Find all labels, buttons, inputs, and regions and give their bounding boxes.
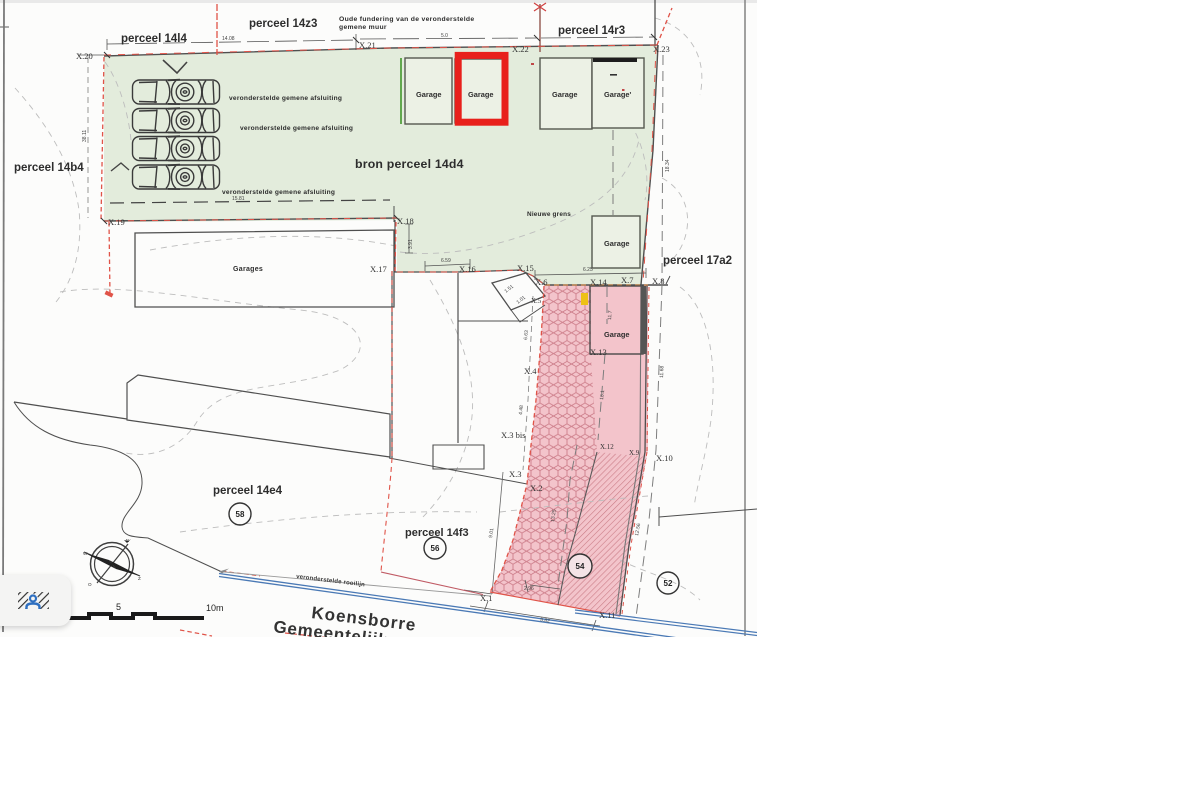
- svg-text:Garage: Garage: [604, 330, 629, 339]
- svg-text:perceel 14z3: perceel 14z3: [249, 18, 317, 30]
- svg-text:X.21: X.21: [359, 40, 376, 50]
- svg-text:X.17: X.17: [370, 264, 387, 274]
- svg-text:6.59: 6.59: [441, 258, 451, 264]
- svg-text:perceel 14b4: perceel 14b4: [14, 162, 84, 174]
- svg-text:6.25: 6.25: [583, 267, 593, 273]
- svg-text:56: 56: [431, 544, 440, 553]
- svg-text:X.19: X.19: [108, 217, 125, 227]
- svg-text:54: 54: [576, 562, 585, 571]
- svg-text:X.5: X.5: [531, 297, 542, 305]
- svg-text:veronderstelde gemene afsluiti: veronderstelde gemene afsluiting: [240, 125, 353, 132]
- svg-text:X.9: X.9: [629, 449, 640, 457]
- svg-text:3.91: 3.91: [408, 239, 414, 249]
- svg-text:4.48: 4.48: [518, 405, 525, 416]
- svg-text:Nieuwe grens: Nieuwe grens: [527, 211, 571, 218]
- svg-text:X.11: X.11: [599, 610, 615, 620]
- svg-text:X.14: X.14: [590, 277, 608, 287]
- svg-text:W: W: [83, 551, 88, 556]
- svg-text:5: 5: [116, 602, 121, 612]
- svg-text:52: 52: [664, 579, 673, 588]
- svg-text:X.1: X.1: [480, 593, 493, 603]
- svg-text:Garage': Garage': [604, 90, 631, 99]
- svg-text:X.13: X.13: [590, 347, 607, 357]
- svg-text:perceel 14e4: perceel 14e4: [213, 485, 283, 497]
- svg-text:X.10: X.10: [656, 453, 673, 463]
- svg-text:Oude fundering van de veronder: Oude fundering van de veronderstelde: [339, 16, 474, 23]
- svg-text:veronderstelde gemene afsluiti: veronderstelde gemene afsluiting: [229, 95, 342, 102]
- svg-text:X.12: X.12: [600, 443, 614, 451]
- svg-text:X.2: X.2: [530, 483, 543, 493]
- svg-text:X.22: X.22: [512, 44, 529, 54]
- svg-text:gemene muur: gemene muur: [339, 24, 387, 31]
- svg-text:Garage: Garage: [468, 90, 493, 99]
- svg-text:X.20: X.20: [76, 51, 93, 61]
- svg-text:X.6: X.6: [535, 277, 548, 287]
- svg-text:bron perceel 14d4: bron perceel 14d4: [355, 157, 464, 171]
- svg-text:Garages: Garages: [233, 266, 263, 273]
- svg-text:X.18: X.18: [397, 216, 414, 226]
- svg-text:18.34: 18.34: [665, 159, 671, 172]
- svg-text:X.16: X.16: [459, 264, 476, 274]
- svg-text:11.68: 11.68: [659, 366, 665, 379]
- svg-text:16.1: 16.1: [599, 390, 606, 401]
- svg-text:Z: Z: [138, 576, 141, 581]
- svg-text:15.81: 15.81: [232, 196, 245, 202]
- svg-text:6.63: 6.63: [523, 330, 530, 341]
- svg-text:perceel 17a2: perceel 17a2: [663, 255, 732, 267]
- svg-text:X.8: X.8: [652, 276, 665, 286]
- svg-text:11.7: 11.7: [607, 310, 614, 320]
- svg-text:X.4: X.4: [524, 366, 537, 376]
- svg-text:perceel 14l4: perceel 14l4: [121, 33, 187, 45]
- svg-text:veronderstelde gemene afsluiti: veronderstelde gemene afsluiting: [222, 189, 335, 196]
- svg-text:X.3: X.3: [509, 469, 522, 479]
- svg-text:X.23: X.23: [653, 44, 670, 54]
- svg-text:Garage: Garage: [552, 90, 577, 99]
- svg-text:O: O: [88, 582, 92, 587]
- svg-text:10m: 10m: [206, 603, 224, 613]
- svg-text:38.11: 38.11: [82, 130, 88, 142]
- svg-text:X.7: X.7: [621, 275, 634, 285]
- svg-text:14.08: 14.08: [222, 36, 235, 42]
- svg-text:58: 58: [236, 510, 245, 519]
- svg-text:Garage: Garage: [416, 90, 441, 99]
- svg-text:perceel 14r3: perceel 14r3: [558, 25, 625, 37]
- svg-text:X.15: X.15: [517, 263, 534, 273]
- svg-text:5.0: 5.0: [441, 33, 448, 39]
- svg-text:N: N: [126, 538, 129, 543]
- svg-text:2.96: 2.96: [524, 586, 534, 592]
- svg-text:X.3 bis: X.3 bis: [501, 430, 526, 440]
- svg-text:Garage: Garage: [604, 239, 629, 248]
